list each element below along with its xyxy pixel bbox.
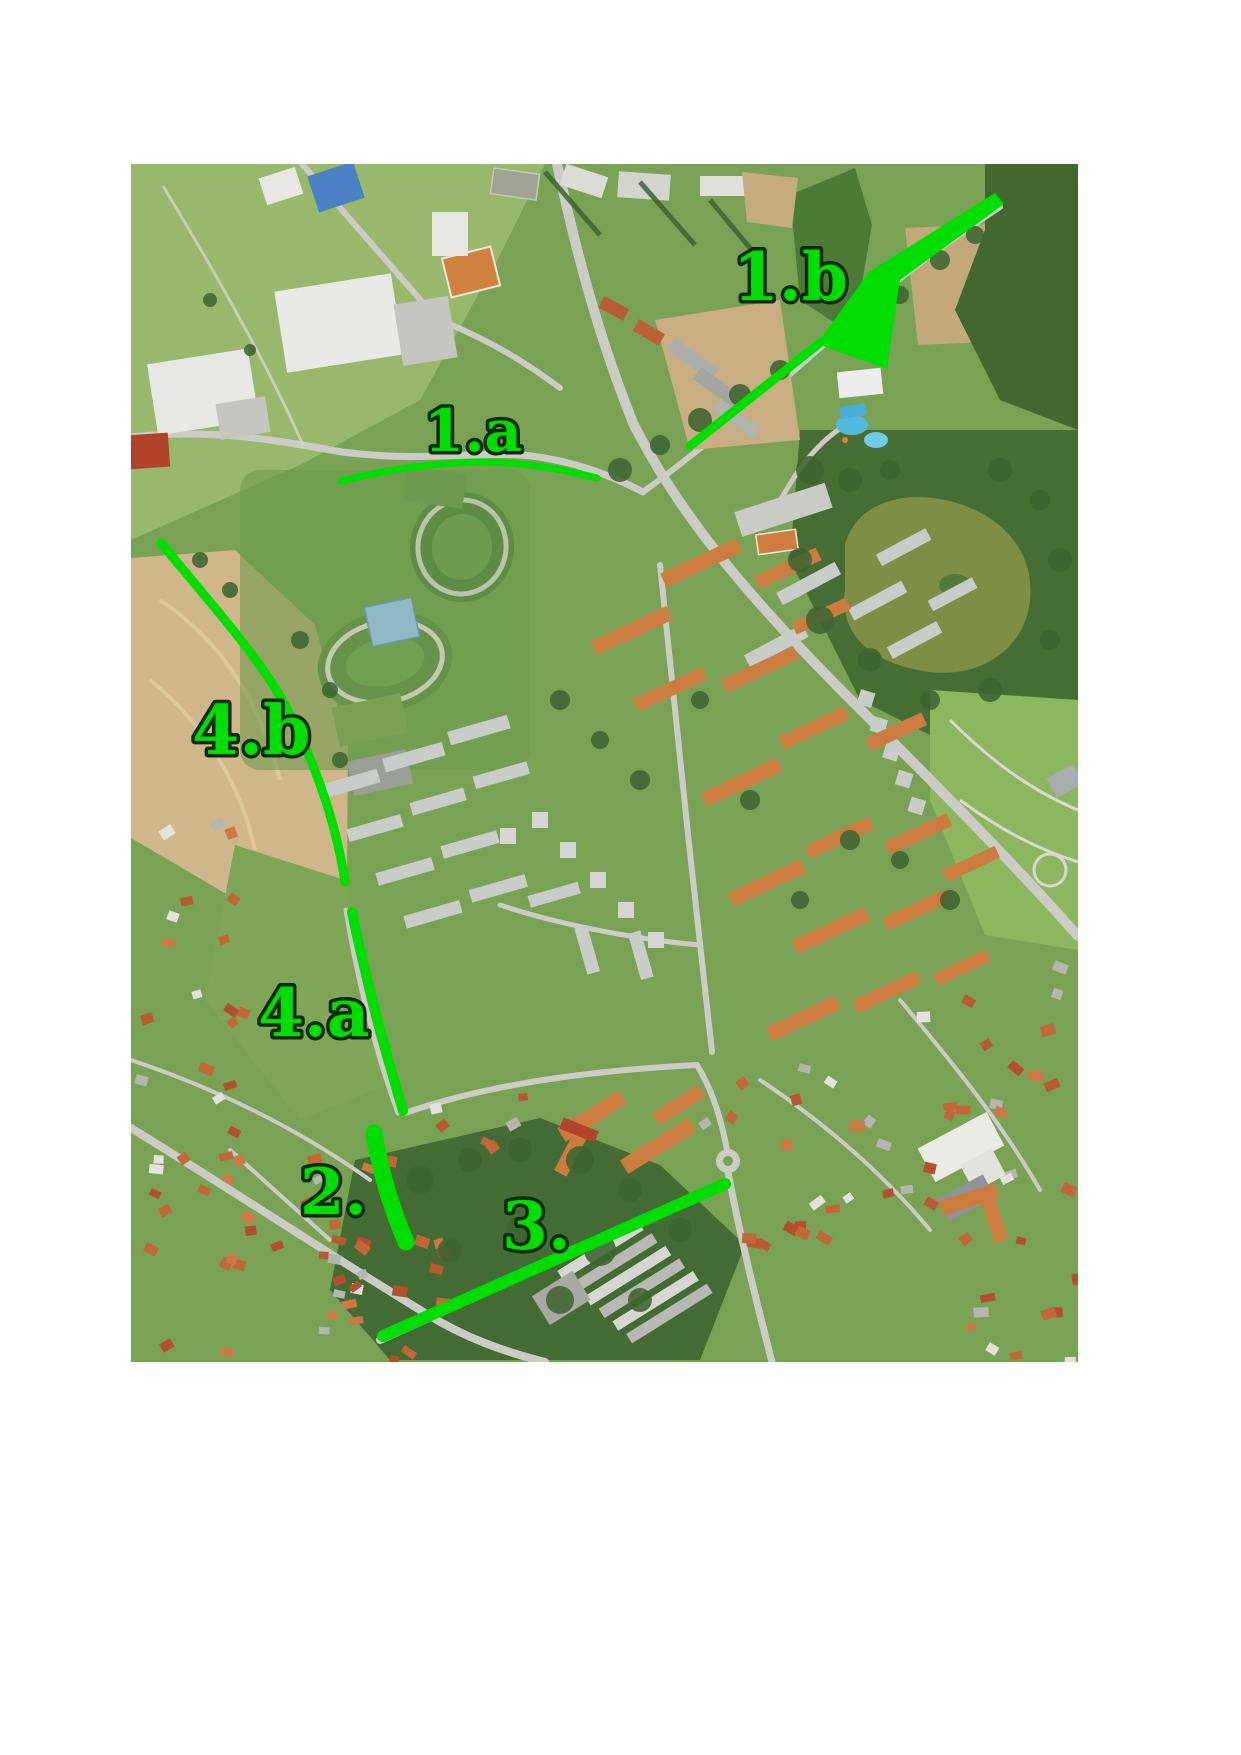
route-label-1a: 1.a bbox=[424, 397, 522, 465]
red-roof-barn bbox=[126, 433, 170, 470]
route-label-3: 3. bbox=[502, 1187, 571, 1265]
cemetery bbox=[490, 168, 539, 200]
parking-lot bbox=[393, 296, 457, 366]
route-label-4a: 4.a bbox=[258, 974, 370, 1052]
pool-hall bbox=[837, 368, 883, 398]
page: 1.a 1.b 4.b 4.a 2. 3. bbox=[0, 0, 1241, 1755]
map-canvas: 1.a 1.b 4.b 4.a 2. 3. bbox=[0, 0, 1241, 1755]
route-label-2: 2. bbox=[300, 1155, 367, 1230]
route-label-4b: 4.b bbox=[192, 691, 311, 771]
route-label-1b: 1.b bbox=[733, 238, 848, 316]
swimming-pool bbox=[836, 415, 868, 435]
